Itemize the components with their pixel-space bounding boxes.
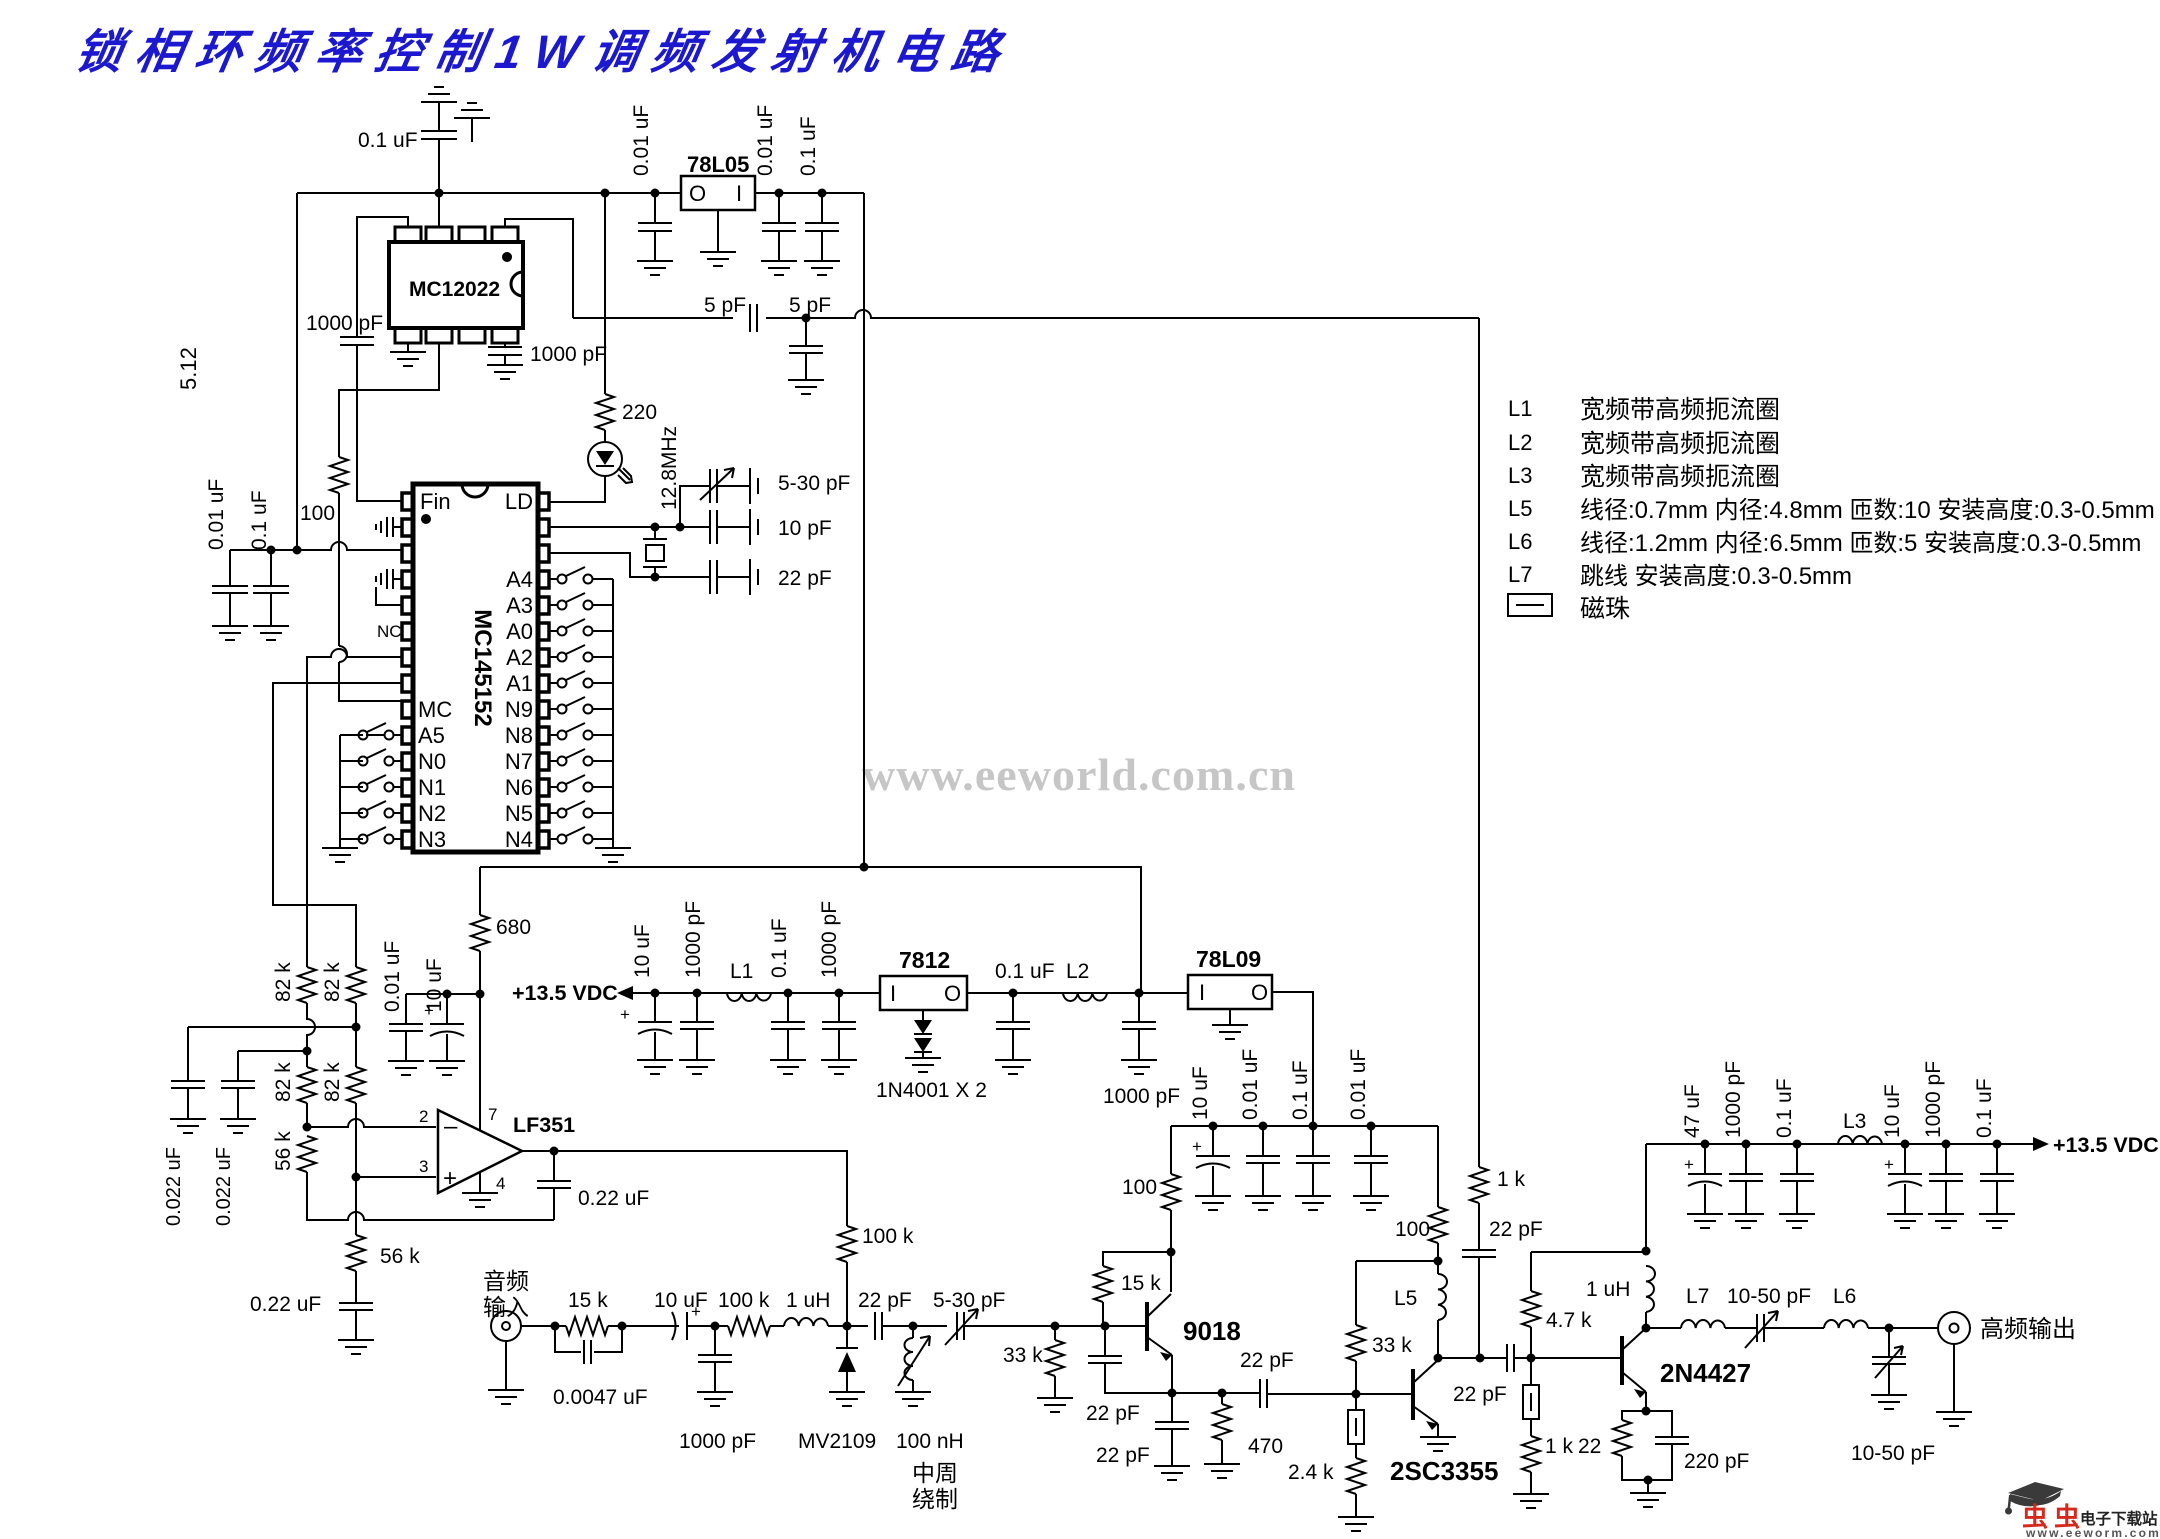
svg-text:10 uF: 10 uF [631, 924, 654, 978]
svg-text:22 pF: 22 pF [1489, 1218, 1543, 1241]
svg-text:15 k: 15 k [568, 1289, 608, 1312]
svg-text:线径:1.2mm 内径:6.5mm 匝数:5 安装高度:0: 线径:1.2mm 内径:6.5mm 匝数:5 安装高度:0.3-0.5mm [1580, 530, 2141, 557]
svg-text:+13.5 VDC: +13.5 VDC [2053, 1133, 2159, 1157]
svg-text:47 uF: 47 uF [1681, 1084, 1704, 1138]
svg-text:10 uF: 10 uF [1881, 1084, 1904, 1138]
svg-text:82 k: 82 k [321, 962, 344, 1002]
svg-text:NC: NC [377, 622, 402, 641]
svg-text:1 uH: 1 uH [1586, 1278, 1630, 1301]
svg-text:0.1 uF: 0.1 uF [358, 129, 418, 152]
svg-text:0.01 uF: 0.01 uF [1239, 1049, 1262, 1120]
svg-text:22 pF: 22 pF [1086, 1402, 1140, 1425]
svg-text:1000 pF: 1000 pF [1922, 1061, 1945, 1138]
svg-text:L5: L5 [1394, 1287, 1417, 1310]
svg-text:–: – [444, 1113, 458, 1140]
svg-text:O: O [1251, 980, 1268, 1005]
svg-text:10 uF: 10 uF [654, 1289, 708, 1312]
svg-text:1000 pF: 1000 pF [682, 901, 705, 978]
svg-text:I: I [736, 181, 742, 206]
svg-text:22 pF: 22 pF [1453, 1383, 1507, 1406]
svg-text:L7: L7 [1508, 562, 1532, 587]
svg-text:N6: N6 [505, 775, 533, 800]
svg-text:A2: A2 [506, 645, 533, 670]
svg-text:1 k: 1 k [1497, 1168, 1526, 1191]
svg-text:0.01 uF: 0.01 uF [1347, 1049, 1370, 1120]
svg-text:1000 pF: 1000 pF [1722, 1061, 1745, 1138]
svg-text:MC12022: MC12022 [409, 278, 500, 301]
svg-text:100: 100 [1395, 1218, 1430, 1241]
svg-text:1 k: 1 k [1545, 1435, 1574, 1458]
svg-text:L1: L1 [1508, 396, 1532, 421]
svg-text:56 k: 56 k [272, 1131, 295, 1171]
svg-text:+: + [1684, 1155, 1694, 1174]
svg-text:磁珠: 磁珠 [1580, 595, 1630, 623]
svg-text:82 k: 82 k [272, 962, 295, 1002]
svg-text:O: O [944, 981, 961, 1006]
svg-text:7: 7 [488, 1105, 497, 1124]
svg-text:10-50 pF: 10-50 pF [1727, 1285, 1811, 1308]
svg-text:2: 2 [419, 1107, 428, 1126]
svg-text:56 k: 56 k [380, 1245, 420, 1268]
svg-text:100 nH: 100 nH [896, 1430, 964, 1453]
svg-text:3: 3 [419, 1157, 428, 1176]
svg-text:0.1 uF: 0.1 uF [995, 960, 1055, 983]
svg-text:N9: N9 [505, 697, 533, 722]
svg-text:A4: A4 [506, 567, 533, 592]
svg-text:5-30 pF: 5-30 pF [933, 1289, 1005, 1312]
svg-text:4: 4 [496, 1174, 505, 1193]
svg-text:音频: 音频 [483, 1268, 529, 1294]
svg-text:N3: N3 [418, 827, 446, 852]
svg-text:100 k: 100 k [862, 1225, 914, 1248]
svg-text:5-30 pF: 5-30 pF [778, 472, 850, 495]
svg-text:0.01 uF: 0.01 uF [205, 479, 228, 550]
svg-text:N7: N7 [505, 749, 533, 774]
svg-text:5 pF: 5 pF [789, 294, 831, 317]
svg-text:0.022 uF: 0.022 uF [163, 1147, 185, 1226]
svg-text:0.01 uF: 0.01 uF [381, 941, 404, 1012]
svg-text:N2: N2 [418, 801, 446, 826]
svg-text:12.8MHz: 12.8MHz [658, 426, 681, 510]
svg-text:100: 100 [1122, 1176, 1157, 1199]
svg-text:220 pF: 220 pF [1684, 1450, 1749, 1473]
svg-text:10 pF: 10 pF [778, 517, 832, 540]
svg-text:0.1 uF: 0.1 uF [1973, 1078, 1996, 1138]
svg-text:0.01 uF: 0.01 uF [630, 105, 653, 176]
svg-text:L6: L6 [1833, 1285, 1856, 1308]
svg-text:L5: L5 [1508, 496, 1532, 521]
svg-text:1000 pF: 1000 pF [679, 1430, 756, 1453]
svg-text:宽频带高频扼流圈: 宽频带高频扼流圈 [1580, 430, 1780, 458]
svg-text:0.0047 uF: 0.0047 uF [553, 1386, 648, 1409]
svg-text:宽频带高频扼流圈: 宽频带高频扼流圈 [1580, 463, 1780, 491]
svg-text:0.1 uF: 0.1 uF [1773, 1078, 1796, 1138]
svg-text:0.022 uF: 0.022 uF [213, 1147, 235, 1226]
svg-text:宽频带高频扼流圈: 宽频带高频扼流圈 [1580, 396, 1780, 424]
svg-text:O: O [689, 181, 706, 206]
svg-text:0.1 uF: 0.1 uF [768, 918, 791, 978]
svg-text:22: 22 [1578, 1435, 1601, 1458]
svg-text:22 pF: 22 pF [1240, 1349, 1294, 1372]
svg-text:33 k: 33 k [1372, 1334, 1412, 1357]
svg-text:绕制: 绕制 [912, 1486, 958, 1512]
svg-text:15 k: 15 k [1121, 1272, 1161, 1295]
svg-text:1000 pF: 1000 pF [818, 901, 841, 978]
svg-text:L7: L7 [1686, 1285, 1709, 1308]
svg-text:2.4 k: 2.4 k [1288, 1461, 1334, 1484]
svg-text:1000 pF: 1000 pF [530, 343, 607, 366]
svg-text:7812: 7812 [899, 947, 950, 973]
svg-text:100 k: 100 k [718, 1289, 770, 1312]
svg-text:N4: N4 [505, 827, 533, 852]
svg-text:中周: 中周 [912, 1460, 958, 1486]
svg-text:I: I [890, 981, 896, 1006]
svg-text:L3: L3 [1508, 463, 1532, 488]
svg-text:高频输出: 高频输出 [1980, 1316, 2076, 1343]
svg-text:www.eeworld.com.cn: www.eeworld.com.cn [862, 749, 1295, 800]
svg-text:10 uF: 10 uF [1189, 1066, 1212, 1120]
svg-text:2N4427: 2N4427 [1660, 1358, 1751, 1388]
svg-text:N0: N0 [418, 749, 446, 774]
svg-text:Fin: Fin [420, 489, 451, 514]
svg-text:线径:0.7mm 内径:4.8mm 匝数:10 安装高度:0: 线径:0.7mm 内径:4.8mm 匝数:10 安装高度:0.3-0.5mm [1580, 497, 2155, 524]
svg-text:22 pF: 22 pF [778, 567, 832, 590]
svg-text:9018: 9018 [1183, 1316, 1241, 1346]
svg-text:1000 pF: 1000 pF [306, 312, 383, 335]
svg-text:470: 470 [1248, 1435, 1283, 1458]
svg-text:5.12: 5.12 [176, 347, 201, 390]
svg-text:跳线 安装高度:0.3-0.5mm: 跳线 安装高度:0.3-0.5mm [1580, 563, 1852, 590]
svg-text:10-50 pF: 10-50 pF [1851, 1442, 1935, 1465]
svg-text:L1: L1 [730, 960, 753, 983]
svg-text:22 pF: 22 pF [858, 1289, 912, 1312]
svg-text:MC145152: MC145152 [469, 609, 496, 726]
svg-text:N5: N5 [505, 801, 533, 826]
svg-text:78L09: 78L09 [1196, 946, 1261, 972]
svg-text:1000 pF: 1000 pF [1103, 1085, 1180, 1108]
svg-text:MC: MC [418, 697, 452, 722]
svg-text:1 uH: 1 uH [786, 1289, 830, 1312]
svg-text:10 uF: 10 uF [423, 958, 446, 1012]
svg-text:L3: L3 [1843, 1110, 1866, 1133]
svg-text:220: 220 [622, 401, 657, 424]
svg-text:+: + [1884, 1155, 1894, 1174]
svg-text:22 pF: 22 pF [1096, 1444, 1150, 1467]
svg-text:5 pF: 5 pF [704, 294, 746, 317]
svg-text:0.01 uF: 0.01 uF [754, 105, 777, 176]
svg-text:A1: A1 [506, 671, 533, 696]
svg-text:2SC3355: 2SC3355 [1390, 1456, 1498, 1486]
svg-text:0.1 uF: 0.1 uF [1289, 1060, 1312, 1120]
svg-text:LD: LD [505, 489, 533, 514]
svg-text:+13.5 VDC: +13.5 VDC [512, 981, 618, 1005]
svg-text:+: + [1192, 1137, 1202, 1156]
svg-text:1N4001 X 2: 1N4001 X 2 [876, 1079, 987, 1102]
svg-text:0.22 uF: 0.22 uF [578, 1187, 649, 1210]
svg-text:N8: N8 [505, 723, 533, 748]
svg-text:I: I [1199, 980, 1205, 1005]
svg-text:78L05: 78L05 [687, 152, 749, 177]
svg-text:A3: A3 [506, 593, 533, 618]
svg-text:锁相环频率控制1W调频发射机电路: 锁相环频率控制1W调频发射机电路 [71, 26, 1017, 79]
svg-text:N1: N1 [418, 775, 446, 800]
svg-text:输入: 输入 [483, 1294, 529, 1320]
svg-text:82 k: 82 k [272, 1062, 295, 1102]
svg-text:0.22 uF: 0.22 uF [250, 1293, 321, 1316]
svg-text:MV2109: MV2109 [798, 1430, 876, 1453]
svg-text:L2: L2 [1508, 430, 1532, 455]
svg-text:0.1 uF: 0.1 uF [797, 116, 820, 176]
svg-text:33 k: 33 k [1003, 1344, 1043, 1367]
svg-text:A5: A5 [418, 723, 445, 748]
svg-text:82 k: 82 k [321, 1062, 344, 1102]
svg-text:100: 100 [300, 502, 335, 525]
svg-text:+: + [443, 1165, 457, 1192]
svg-text:A0: A0 [506, 619, 533, 644]
svg-text:LF351: LF351 [513, 1113, 575, 1137]
svg-text:L6: L6 [1508, 529, 1532, 554]
svg-text:+: + [620, 1005, 630, 1024]
svg-text:L2: L2 [1066, 960, 1089, 983]
svg-text:www.eeworm.com: www.eeworm.com [2025, 1526, 2160, 1539]
svg-text:680: 680 [496, 916, 531, 939]
svg-text:4.7 k: 4.7 k [1546, 1309, 1592, 1332]
svg-text:0.1 uF: 0.1 uF [248, 490, 271, 550]
